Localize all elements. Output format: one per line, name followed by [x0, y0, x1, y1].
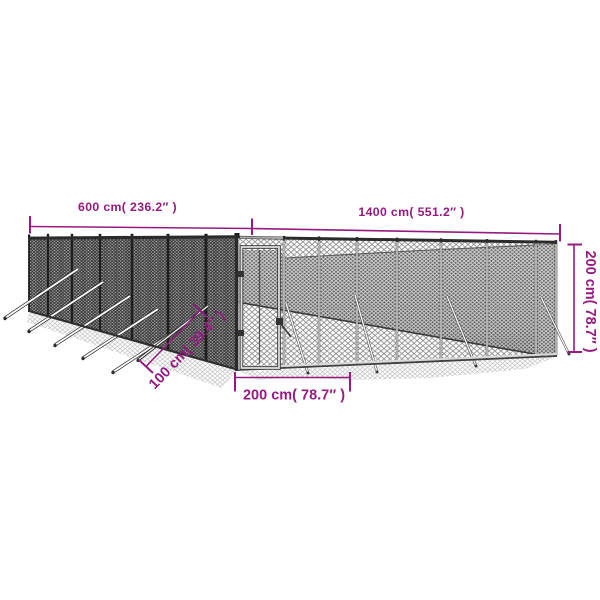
svg-text:1400 cm( 551.2″ ): 1400 cm( 551.2″ ) [358, 205, 464, 219]
svg-text:200 cm( 78.7″ ): 200 cm( 78.7″ ) [243, 388, 345, 404]
svg-text:600 cm( 236.2″ ): 600 cm( 236.2″ ) [78, 200, 177, 214]
svg-text:200 cm( 78.7″ ): 200 cm( 78.7″ ) [582, 250, 598, 352]
